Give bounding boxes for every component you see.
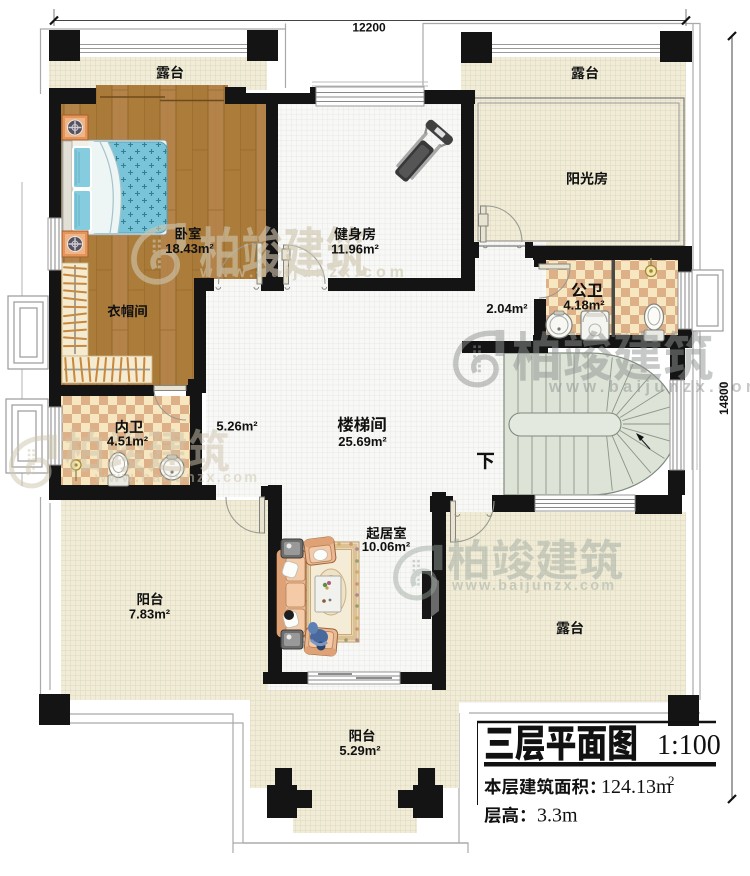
svg-text:14800: 14800 xyxy=(717,381,731,415)
svg-text:12200: 12200 xyxy=(352,21,386,35)
svg-text:124.13m: 124.13m xyxy=(601,776,672,798)
svg-text:www.baijunzx.com: www.baijunzx.com xyxy=(94,470,259,486)
svg-text:www.baijunzx.com: www.baijunzx.com xyxy=(199,264,408,281)
svg-text:1:100: 1:100 xyxy=(657,730,721,761)
svg-text:5.29m²: 5.29m² xyxy=(339,743,381,758)
svg-text:2: 2 xyxy=(668,773,675,788)
svg-text:4.51m²: 4.51m² xyxy=(107,434,149,449)
svg-text:25.69m²: 25.69m² xyxy=(338,434,387,449)
svg-text:18.43m²: 18.43m² xyxy=(165,241,214,256)
svg-text:11.96m²: 11.96m² xyxy=(331,242,379,257)
svg-text:5.26m²: 5.26m² xyxy=(216,419,258,434)
svg-text:4.18m²: 4.18m² xyxy=(563,298,605,313)
svg-text:10.06m²: 10.06m² xyxy=(362,539,411,554)
svg-text:3.3m: 3.3m xyxy=(537,805,578,827)
svg-text:www.baijunzx.com: www.baijunzx.com xyxy=(451,578,616,594)
svg-text:2.04m²: 2.04m² xyxy=(486,301,528,316)
svg-text:7.83m²: 7.83m² xyxy=(129,607,171,622)
